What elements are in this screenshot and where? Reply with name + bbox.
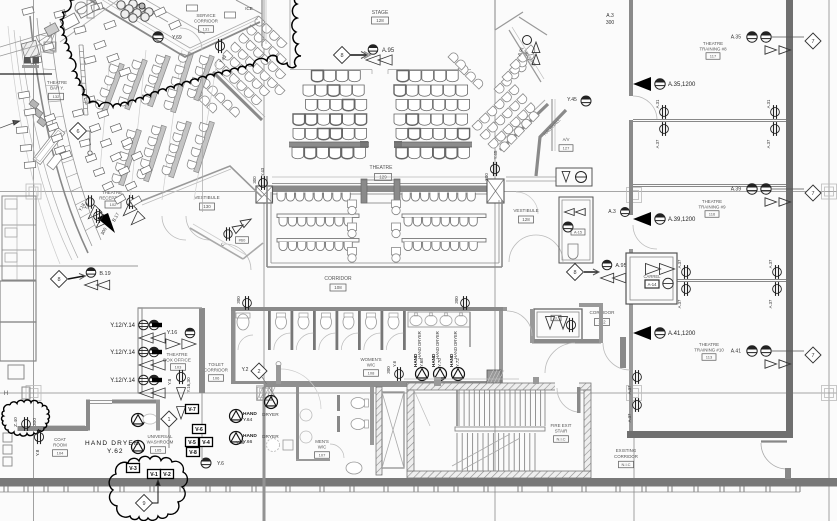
svg-text:A-14: A-14 bbox=[648, 282, 658, 287]
svg-text:HAND: HAND bbox=[243, 433, 257, 439]
svg-text:Y.2: Y.2 bbox=[242, 367, 249, 373]
svg-text:300: 300 bbox=[484, 173, 489, 181]
svg-text:300: 300 bbox=[386, 366, 391, 374]
svg-text:104: 104 bbox=[57, 451, 64, 456]
svg-text:HAND: HAND bbox=[449, 353, 454, 367]
svg-text:V-8: V-8 bbox=[189, 450, 197, 456]
svg-text:HAND: HAND bbox=[431, 353, 436, 367]
svg-text:A.95: A.95 bbox=[382, 48, 395, 54]
svg-text:Y.8: Y.8 bbox=[35, 449, 41, 456]
svg-text:8: 8 bbox=[57, 277, 60, 283]
svg-text:Y.66: Y.66 bbox=[236, 440, 245, 445]
svg-text:A.37: A.37 bbox=[677, 259, 682, 268]
svg-text:107: 107 bbox=[319, 453, 326, 458]
svg-text:Y.12/Y.14: Y.12/Y.14 bbox=[110, 323, 135, 329]
svg-text:TRAINING #8: TRAINING #8 bbox=[699, 47, 727, 52]
svg-text:THEATRE: THEATRE bbox=[166, 352, 187, 357]
svg-text:Y.43: Y.43 bbox=[260, 167, 265, 176]
svg-text:STAIR: STAIR bbox=[555, 429, 568, 434]
svg-text:V-3: V-3 bbox=[129, 466, 137, 472]
svg-text:130: 130 bbox=[203, 204, 211, 209]
svg-text:V-7: V-7 bbox=[188, 407, 196, 413]
svg-text:CORRIDOR: CORRIDOR bbox=[614, 454, 638, 459]
svg-text:Y.6: Y.6 bbox=[217, 461, 224, 467]
svg-text:A/V: A/V bbox=[563, 137, 570, 142]
svg-text:A.41: A.41 bbox=[731, 349, 742, 355]
svg-text:CORRIDOR: CORRIDOR bbox=[324, 276, 352, 282]
svg-text:A.95: A.95 bbox=[615, 263, 626, 269]
svg-text:V-2: V-2 bbox=[163, 472, 171, 478]
svg-text:A.31: A.31 bbox=[766, 99, 771, 108]
svg-text:STAGE: STAGE bbox=[372, 10, 389, 16]
svg-text:TRAINING #9: TRAINING #9 bbox=[698, 205, 726, 210]
svg-text:THEATRE: THEATRE bbox=[47, 80, 67, 85]
svg-text:A.41,1200: A.41,1200 bbox=[668, 331, 696, 337]
svg-text:HAND: HAND bbox=[243, 411, 257, 417]
svg-text:N.I.C: N.I.C bbox=[556, 437, 565, 442]
svg-text:EL: EL bbox=[554, 317, 559, 321]
svg-text:A.37: A.37 bbox=[627, 413, 632, 422]
svg-text:V-1: V-1 bbox=[150, 472, 158, 478]
svg-text:105: 105 bbox=[155, 448, 162, 453]
svg-text:A.37: A.37 bbox=[655, 139, 660, 148]
svg-text:A-15: A-15 bbox=[574, 231, 582, 235]
svg-text:B.19: B.19 bbox=[99, 271, 110, 277]
svg-text:W/C: W/C bbox=[318, 445, 327, 450]
svg-text:V-5: V-5 bbox=[188, 440, 196, 446]
svg-text:Y.16: Y.16 bbox=[167, 330, 178, 336]
svg-text:A.37: A.37 bbox=[768, 299, 773, 308]
svg-text:TRAINING #10: TRAINING #10 bbox=[694, 348, 724, 353]
svg-text:Y.69: Y.69 bbox=[172, 35, 182, 41]
svg-text:DRYER: DRYER bbox=[262, 412, 279, 418]
svg-text:ROOM: ROOM bbox=[53, 443, 67, 448]
svg-text:117: 117 bbox=[710, 54, 717, 59]
svg-text:Y.66: Y.66 bbox=[243, 439, 253, 445]
svg-text:A.37: A.37 bbox=[766, 139, 771, 148]
svg-text:7: 7 bbox=[811, 191, 814, 197]
svg-text:132: 132 bbox=[53, 94, 60, 99]
svg-text:Y.68: Y.68 bbox=[419, 358, 424, 367]
svg-text:V-4: V-4 bbox=[202, 440, 210, 446]
svg-text:A.3: A.3 bbox=[608, 209, 616, 215]
svg-text:128: 128 bbox=[376, 18, 384, 23]
svg-text:A.37: A.37 bbox=[627, 385, 632, 394]
svg-text:WOMEN'S: WOMEN'S bbox=[360, 357, 381, 362]
svg-text:103: 103 bbox=[175, 365, 182, 370]
svg-text:N.I.C: N.I.C bbox=[621, 462, 630, 467]
svg-text:H: H bbox=[4, 391, 8, 397]
svg-text:8: 8 bbox=[573, 270, 576, 276]
svg-text:Y.16,30: Y.16,30 bbox=[186, 377, 191, 393]
svg-text:BOX OFFICE: BOX OFFICE bbox=[163, 358, 191, 363]
svg-text:A.35: A.35 bbox=[731, 35, 742, 41]
svg-text:300: 300 bbox=[252, 176, 257, 184]
svg-text:Y.45: Y.45 bbox=[567, 97, 577, 103]
svg-text:116: 116 bbox=[709, 212, 716, 217]
svg-text:CORRIDOR: CORRIDOR bbox=[204, 368, 228, 373]
svg-text:CORRIDOR: CORRIDOR bbox=[194, 19, 218, 24]
svg-text:300: 300 bbox=[606, 20, 615, 26]
svg-text:W/C: W/C bbox=[367, 363, 376, 368]
svg-text:TOILET: TOILET bbox=[208, 362, 224, 367]
svg-text:8: 8 bbox=[340, 53, 343, 59]
svg-text:COAT: COAT bbox=[54, 437, 66, 442]
svg-text:6: 6 bbox=[76, 129, 79, 135]
svg-text:Y.70: Y.70 bbox=[437, 358, 442, 367]
svg-text:Z.40: Z.40 bbox=[13, 417, 19, 427]
svg-text:Y.45: Y.45 bbox=[493, 150, 498, 159]
svg-text:131: 131 bbox=[203, 27, 210, 32]
svg-text:Y.6: Y.6 bbox=[392, 360, 397, 367]
svg-text:BAR Y.: BAR Y. bbox=[50, 86, 64, 91]
svg-text:SERVICE: SERVICE bbox=[196, 13, 215, 18]
svg-text:300: 300 bbox=[32, 418, 38, 426]
svg-text:HAND: HAND bbox=[413, 353, 418, 367]
svg-text:ICE: ICE bbox=[245, 6, 253, 11]
svg-text:2: 2 bbox=[257, 369, 260, 375]
svg-text:128: 128 bbox=[522, 217, 530, 222]
svg-text:1: 1 bbox=[167, 417, 170, 423]
svg-text:106: 106 bbox=[213, 376, 220, 381]
svg-text:300: 300 bbox=[454, 296, 459, 304]
svg-text:7: 7 bbox=[811, 39, 814, 45]
svg-text:108: 108 bbox=[334, 285, 342, 290]
svg-text:THEATRE: THEATRE bbox=[703, 41, 723, 46]
svg-text:FIRE EXIT: FIRE EXIT bbox=[551, 423, 572, 428]
svg-text:MEN'S: MEN'S bbox=[315, 439, 329, 444]
svg-text:V-6: V-6 bbox=[195, 427, 203, 433]
svg-text:Y.72: Y.72 bbox=[455, 358, 460, 367]
svg-text:WASHROOM: WASHROOM bbox=[147, 440, 174, 445]
svg-text:Y.62: Y.62 bbox=[107, 448, 124, 455]
svg-text:127: 127 bbox=[563, 146, 570, 151]
svg-text:113: 113 bbox=[706, 355, 713, 360]
svg-text:Y.12/Y.14: Y.12/Y.14 bbox=[110, 350, 135, 356]
svg-text:THEATRE: THEATRE bbox=[370, 165, 394, 171]
svg-text:300: 300 bbox=[236, 296, 241, 304]
svg-text:THEATRE: THEATRE bbox=[699, 342, 719, 347]
svg-text:VESTIBULE: VESTIBULE bbox=[194, 195, 219, 200]
svg-text:A.37: A.37 bbox=[677, 299, 682, 308]
svg-text:A.39: A.39 bbox=[731, 187, 742, 193]
svg-text:A.37: A.37 bbox=[768, 259, 773, 268]
svg-text:A.31: A.31 bbox=[655, 99, 660, 108]
svg-text:Y.64: Y.64 bbox=[243, 417, 253, 423]
svg-text:EXISTING: EXISTING bbox=[616, 448, 637, 453]
svg-text:A.3: A.3 bbox=[606, 13, 614, 19]
svg-text:#60: #60 bbox=[239, 238, 246, 243]
svg-text:Y.12/Y.14: Y.12/Y.14 bbox=[110, 378, 135, 384]
svg-text:Y.8: Y.8 bbox=[167, 378, 172, 385]
svg-text:102: 102 bbox=[110, 202, 117, 207]
svg-text:A.35,1200: A.35,1200 bbox=[668, 82, 696, 88]
svg-text:9: 9 bbox=[142, 501, 145, 507]
svg-text:CARREL: CARREL bbox=[644, 274, 662, 279]
svg-text:7: 7 bbox=[811, 353, 814, 359]
svg-text:THEATRE: THEATRE bbox=[702, 199, 722, 204]
svg-text:A.39,1200: A.39,1200 bbox=[668, 217, 696, 223]
svg-text:VESTIBULE: VESTIBULE bbox=[513, 208, 538, 213]
svg-text:108: 108 bbox=[368, 371, 375, 376]
